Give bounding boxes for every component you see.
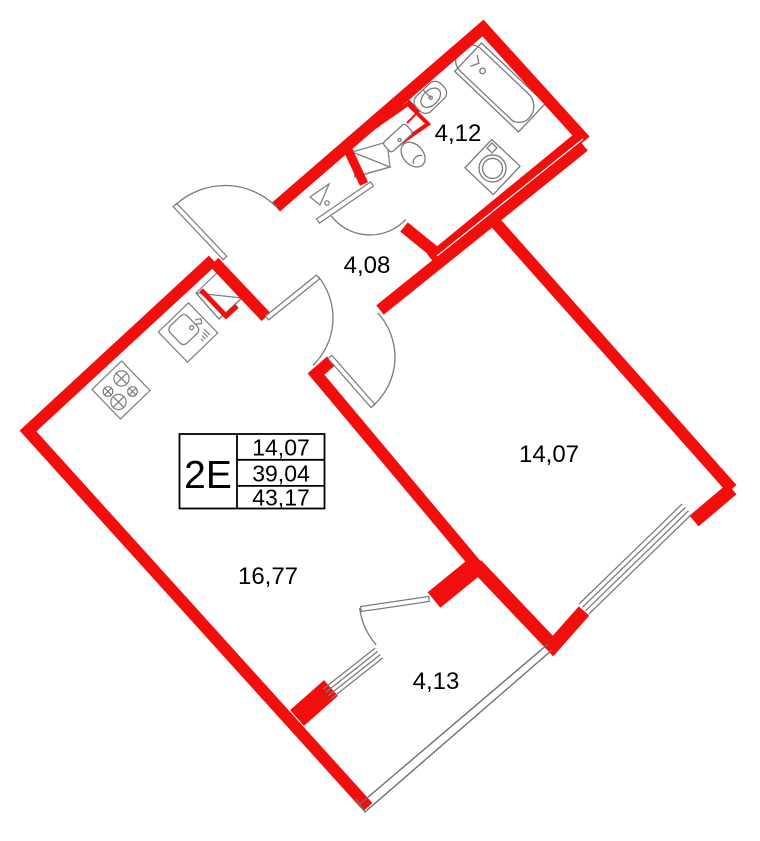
svg-text:4,13: 4,13 — [413, 668, 460, 695]
svg-text:14,07: 14,07 — [519, 441, 579, 468]
svg-text:43,17: 43,17 — [252, 485, 310, 511]
svg-text:16,77: 16,77 — [238, 563, 298, 590]
svg-text:14,07: 14,07 — [252, 435, 310, 461]
svg-text:39,04: 39,04 — [252, 461, 310, 487]
svg-text:4,12: 4,12 — [435, 120, 482, 147]
svg-text:2E: 2E — [184, 454, 232, 497]
svg-text:4,08: 4,08 — [344, 252, 391, 279]
